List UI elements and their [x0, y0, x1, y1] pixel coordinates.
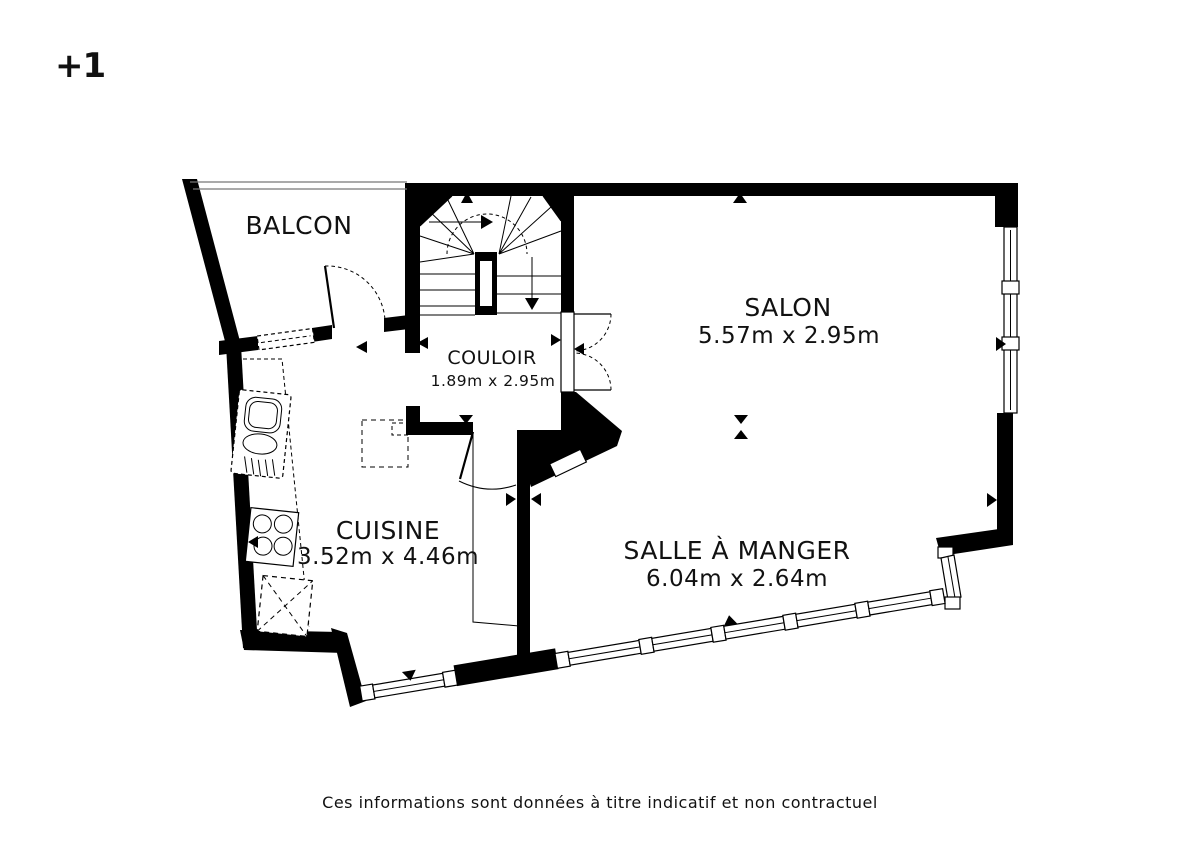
balcony-bottom-wall-seg2 — [312, 325, 332, 342]
salon-window — [1002, 227, 1019, 413]
salon-door-marker-left-icon — [551, 334, 561, 346]
right-wall-marker-icon — [987, 493, 997, 507]
counter-stub — [392, 423, 408, 435]
balcony-door — [325, 266, 385, 328]
couloir-bottom-wall — [418, 422, 473, 435]
stair-left-wall — [405, 196, 420, 353]
bottom-wall-segment — [454, 648, 559, 686]
dining-window-band — [358, 580, 945, 702]
room-dims-cuisine: 3.52m x 4.46m — [297, 544, 479, 570]
stair-down-arrow-icon — [525, 298, 539, 310]
room-dims-couloir: 1.89m x 2.95m — [431, 372, 556, 390]
staircase — [420, 192, 561, 315]
couloir-right-wall — [561, 196, 574, 312]
kitchen-counter-right — [473, 432, 519, 626]
room-dims-salle-a-manger: 6.04m x 2.64m — [646, 566, 828, 592]
room-dims-salon: 5.57m x 2.95m — [698, 323, 880, 349]
divider-marker-left-icon — [506, 493, 516, 506]
salon-dining-marker-up-icon — [734, 430, 748, 439]
room-label-salle-a-manger: SALLE À MANGER — [624, 536, 851, 565]
salon-dining-marker-down-icon — [734, 415, 748, 424]
kitchen-appliance — [257, 576, 313, 637]
kitchen-hob — [245, 508, 298, 567]
right-wall-lower — [997, 413, 1013, 540]
disclaimer-text: Ces informations sont données à titre in… — [322, 793, 878, 812]
opening-markers — [248, 193, 1006, 548]
floorplan-page: +1 BALCON SALON 5.57m x 2.95m COULOIR 1.… — [0, 0, 1200, 849]
windows — [257, 227, 1019, 702]
stair-eye — [480, 261, 492, 306]
room-label-balcon: BALCON — [245, 211, 352, 240]
top-wall — [405, 183, 1018, 196]
kitchen-door — [459, 432, 516, 489]
room-label-cuisine: CUISINE — [336, 516, 440, 545]
balcony-window — [257, 328, 314, 349]
divider-marker-right-icon — [531, 493, 541, 506]
stair-right-arrow-icon — [481, 215, 493, 229]
kitchen-fixtures — [231, 359, 519, 636]
diagonal-wall — [517, 392, 622, 487]
kitchen-island — [362, 420, 408, 467]
top-right-corner-wall — [995, 196, 1018, 227]
passage-marker-a-icon — [356, 341, 367, 353]
balcony-left-wall — [182, 179, 241, 345]
room-label-couloir: COULOIR — [447, 347, 536, 369]
kitchen-sink — [231, 390, 291, 479]
floor-label: +1 — [55, 46, 105, 86]
balcony-railing — [190, 182, 407, 189]
room-label-salon: SALON — [744, 293, 831, 322]
salon-double-door — [561, 312, 611, 392]
floorplan-svg: +1 BALCON SALON 5.57m x 2.95m COULOIR 1.… — [0, 0, 1200, 849]
